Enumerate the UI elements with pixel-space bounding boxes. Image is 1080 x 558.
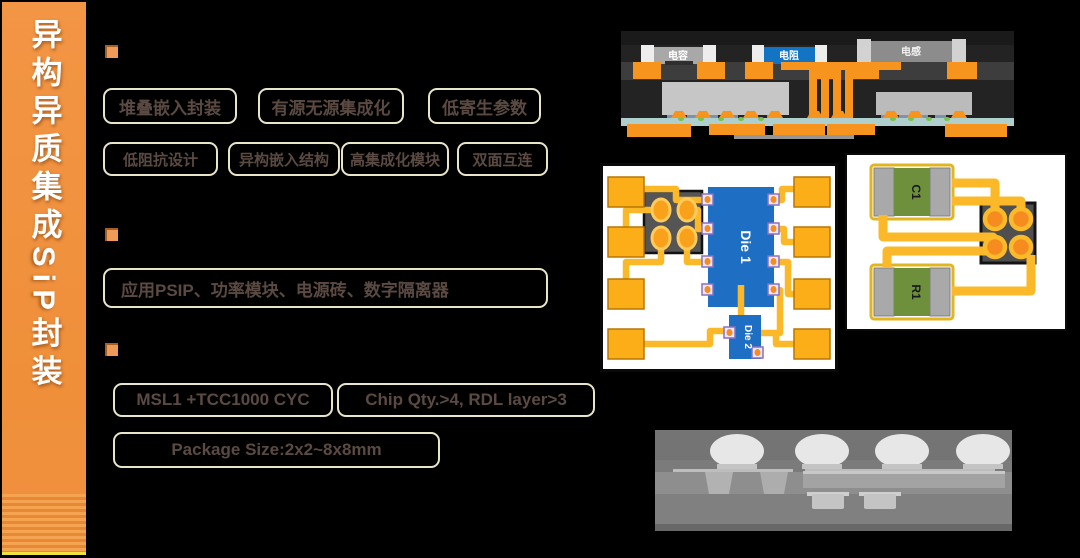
- embedded-die-left: [662, 82, 789, 115]
- resistor-component: 电阻: [752, 45, 827, 64]
- inductor-component: 电感: [857, 39, 966, 66]
- bullet-square-3: [105, 343, 118, 356]
- feature-tag-active-passive: 有源无源集成化: [258, 88, 404, 124]
- feature-tag-stack-embedded: 堆叠嵌入封装: [103, 88, 237, 124]
- page-title: 异构异质集成SiP封装: [22, 18, 67, 393]
- die2-label: Die 2: [742, 325, 753, 349]
- feature-tag-low-impedance: 低阻抗设计: [103, 142, 218, 176]
- bullet-square-1: [105, 45, 118, 58]
- bullet-square-2: [105, 228, 118, 241]
- feature-tag-low-parasitic: 低寄生参数: [428, 88, 541, 124]
- c1-label: C1: [909, 184, 923, 200]
- rdl-layout-diagram: Die 1 Die 2: [600, 163, 838, 372]
- feature-tag-hetero-embedded: 异构嵌入结构: [228, 142, 340, 176]
- embedded-die-slab: [803, 474, 1005, 488]
- resistor-label: 电阻: [779, 49, 799, 62]
- sidebar-stripes-decoration: [2, 494, 86, 552]
- sem-cross-section-image: [655, 430, 1012, 531]
- component-layout-diagram: C1 R1: [845, 153, 1067, 331]
- copper-stud: [812, 494, 844, 509]
- copper-stud: [864, 494, 896, 509]
- r1-label: R1: [909, 284, 923, 300]
- feature-tag-high-integration: 高集成化模块: [341, 142, 449, 176]
- capacitor-c1: C1: [871, 165, 953, 219]
- spec-box-chip-qty: Chip Qty.>4, RDL layer>3: [337, 383, 595, 417]
- inductor-label: 电感: [901, 45, 921, 58]
- resistor-r1: R1: [871, 265, 953, 319]
- feature-tag-double-sided: 双面互连: [457, 142, 548, 176]
- sidebar-bottom-line: [2, 552, 86, 555]
- die1-label: Die 1: [738, 230, 754, 264]
- package-cross-section-diagram: 电容 电阻 电感: [621, 31, 1014, 141]
- via-pillar: [760, 472, 788, 494]
- slide: 异构异质集成SiP封装 堆叠嵌入封装 有源无源集成化 低寄生参数 低阻抗设计 异…: [0, 0, 1080, 558]
- spec-box-package-size: Package Size:2x2~8x8mm: [113, 432, 440, 468]
- sidebar-title-bar: 异构异质集成SiP封装: [2, 2, 86, 555]
- capacitor-label: 电容: [668, 49, 688, 62]
- spec-box-reliability: MSL1 +TCC1000 CYC: [113, 383, 333, 417]
- application-box: 应用PSIP、功率模块、电源砖、数字隔离器: [103, 268, 548, 308]
- via-pillar: [705, 472, 733, 494]
